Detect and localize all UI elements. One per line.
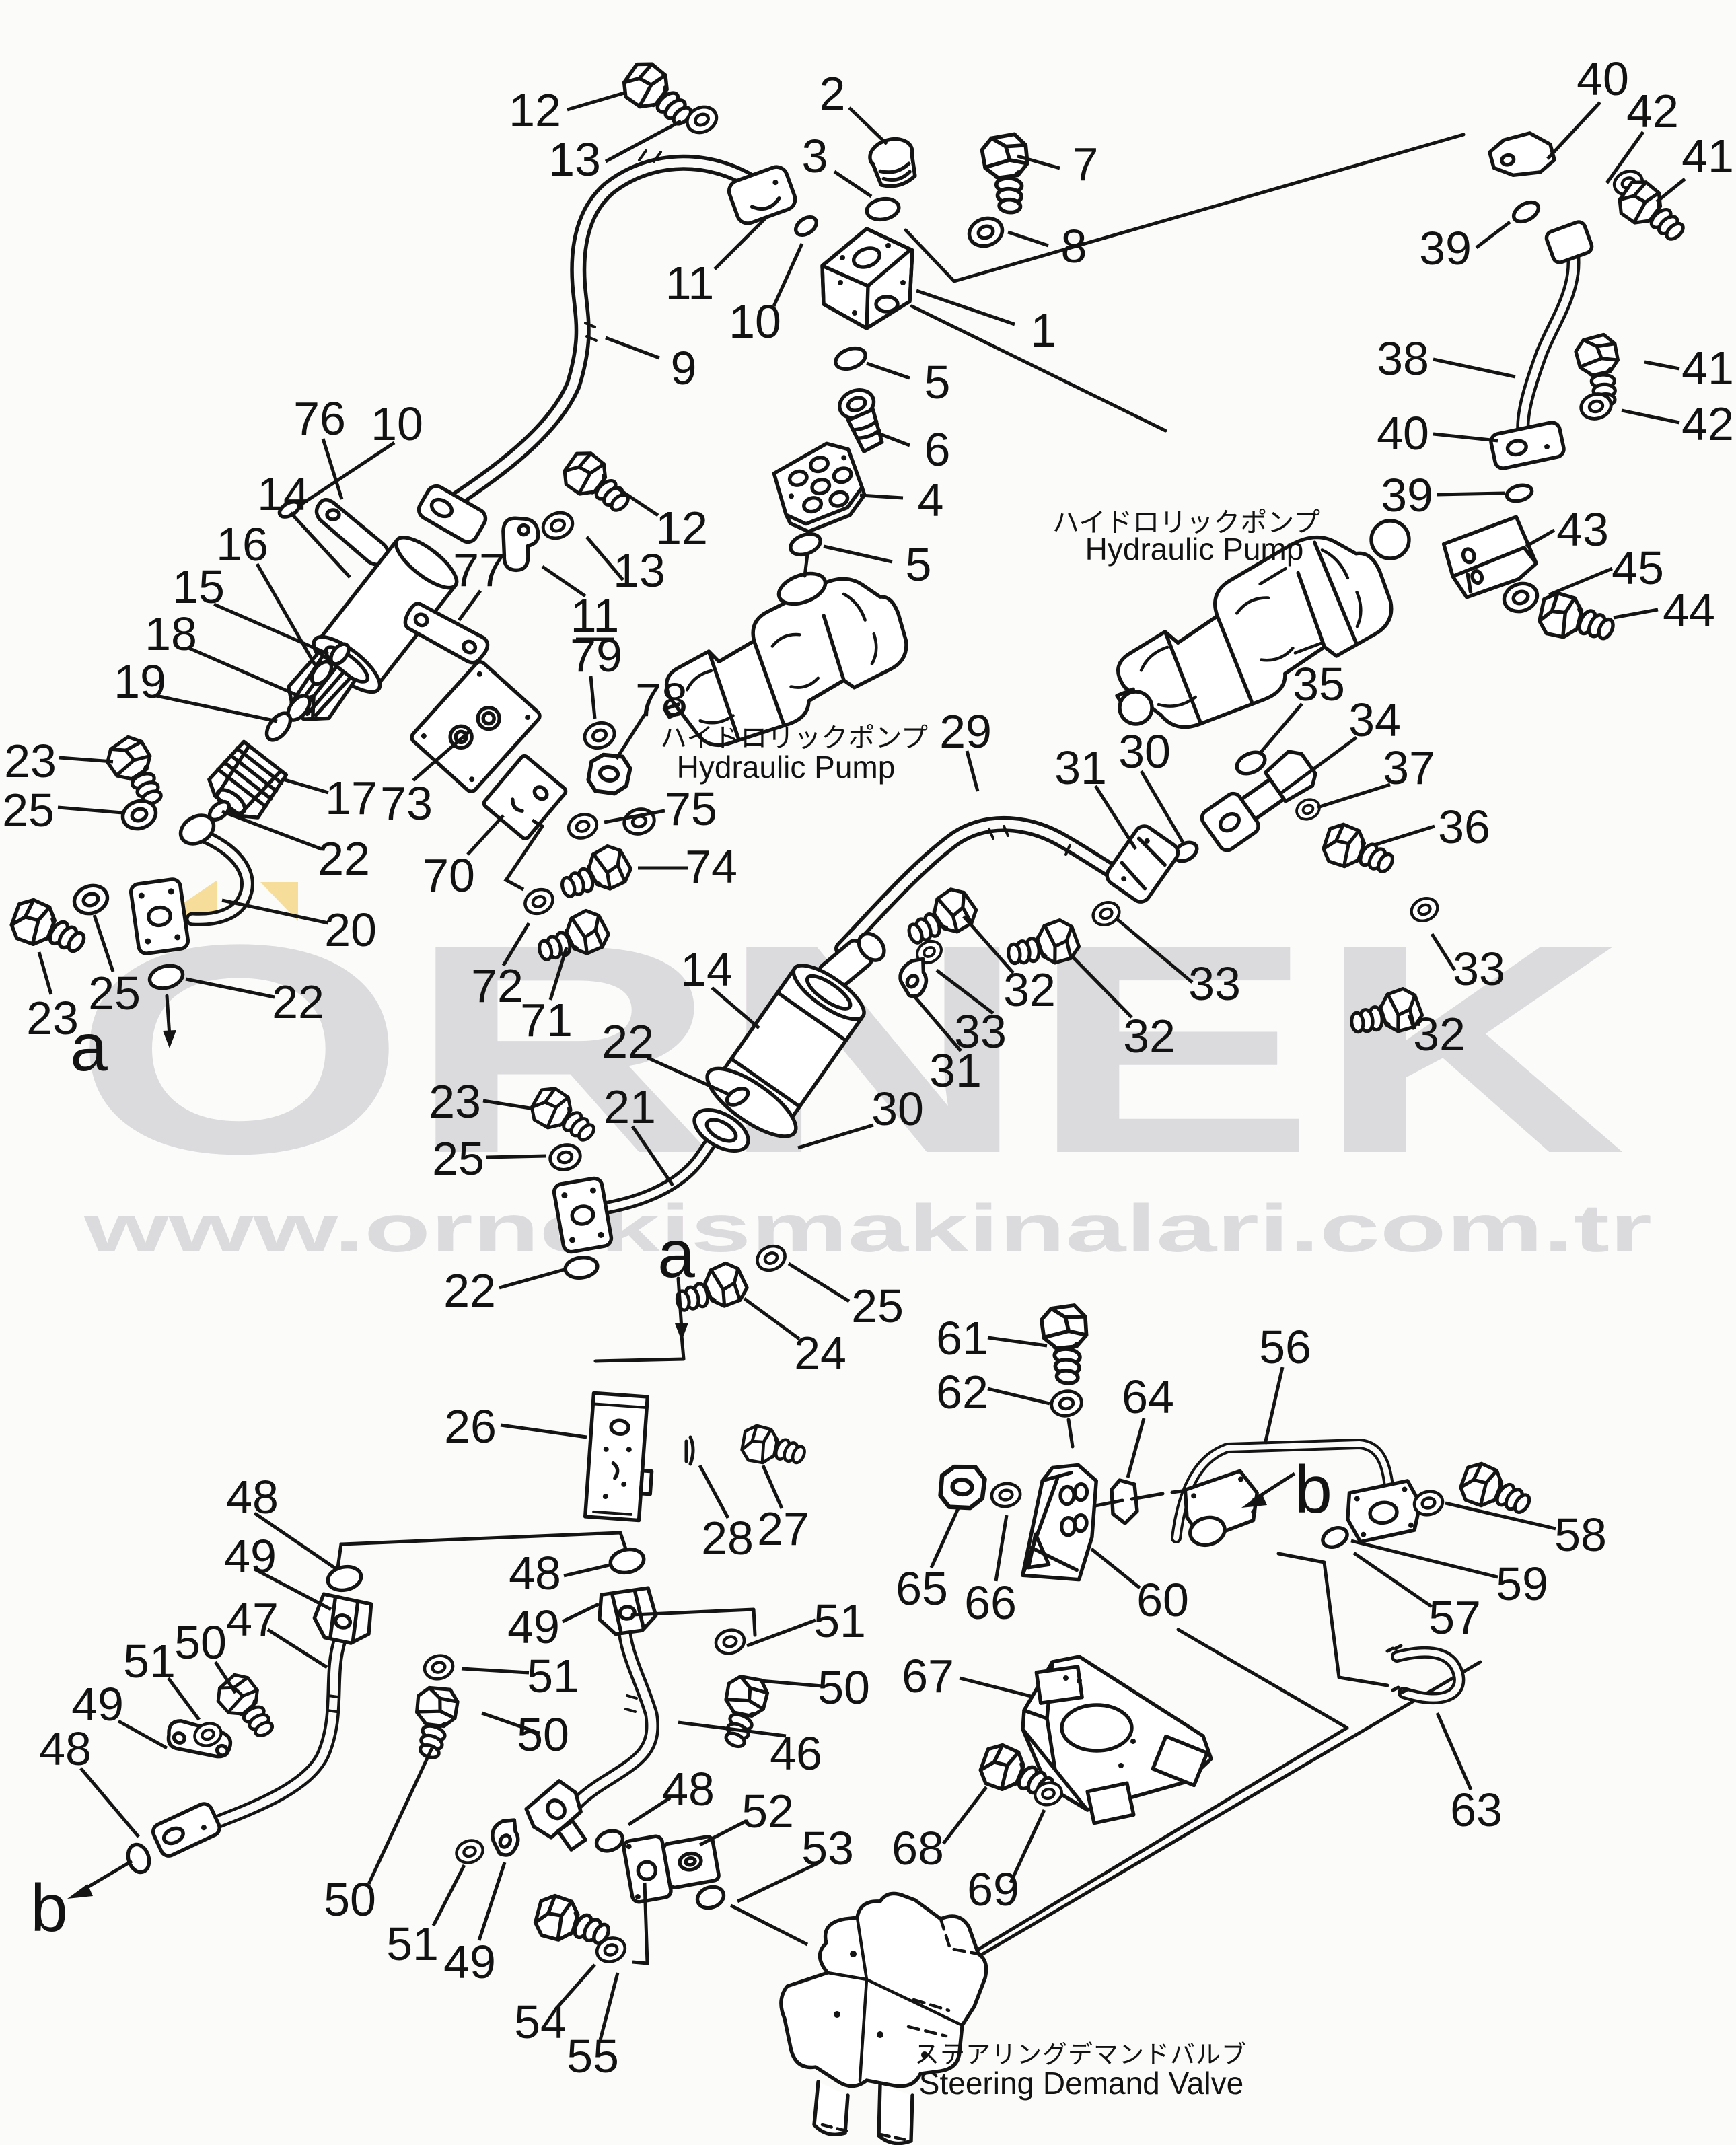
svg-text:75: 75 [665,783,717,835]
svg-text:6: 6 [925,423,951,476]
svg-text:41: 41 [1681,130,1734,182]
svg-text:13: 13 [613,544,665,597]
svg-text:ハイドロリックポンプ: ハイドロリックポンプ [660,723,928,753]
svg-text:53: 53 [801,1822,854,1875]
svg-text:17: 17 [325,772,377,824]
svg-text:33: 33 [954,1005,1007,1058]
svg-text:24: 24 [794,1327,846,1379]
svg-text:55: 55 [567,2030,619,2082]
svg-text:40: 40 [1377,407,1429,460]
svg-text:49: 49 [71,1678,124,1731]
svg-text:5: 5 [925,356,951,408]
svg-text:3: 3 [802,130,828,182]
svg-text:61: 61 [936,1312,988,1365]
svg-text:26: 26 [444,1400,497,1453]
svg-text:34: 34 [1348,694,1401,746]
svg-text:29: 29 [939,705,992,758]
svg-text:30: 30 [1118,725,1171,778]
svg-text:50: 50 [324,1873,376,1926]
svg-text:51: 51 [527,1650,579,1702]
svg-text:8: 8 [1061,220,1087,272]
svg-text:10: 10 [371,398,423,450]
svg-text:21: 21 [604,1081,656,1133]
svg-text:50: 50 [818,1661,870,1714]
svg-text:54: 54 [514,1996,567,2048]
svg-text:14: 14 [680,943,733,996]
svg-text:49: 49 [224,1530,277,1583]
svg-text:23: 23 [4,735,57,787]
svg-text:25: 25 [851,1280,904,1332]
svg-text:2: 2 [820,67,846,120]
svg-text:73: 73 [380,777,433,830]
svg-text:48: 48 [662,1763,715,1815]
svg-text:32: 32 [1123,1010,1176,1062]
svg-text:74: 74 [685,840,737,893]
svg-text:www.ornekismakinalari.com.tr: www.ornekismakinalari.com.tr [83,1191,1652,1266]
svg-text:11: 11 [665,257,715,310]
svg-text:67: 67 [902,1650,954,1702]
svg-text:44: 44 [1663,584,1715,637]
svg-text:41: 41 [1681,342,1734,394]
svg-text:64: 64 [1122,1371,1174,1423]
svg-text:36: 36 [1438,801,1490,853]
svg-text:22: 22 [272,976,324,1028]
svg-text:5: 5 [906,538,932,591]
svg-text:77: 77 [453,544,505,596]
svg-text:ステアリングデマンドバルブ: ステアリングデマンドバルブ [914,2041,1247,2068]
svg-text:35: 35 [1293,658,1345,711]
svg-text:69: 69 [967,1863,1019,1916]
svg-text:b: b [1295,1452,1332,1527]
svg-text:33: 33 [1188,957,1241,1010]
svg-text:57: 57 [1428,1591,1481,1644]
svg-text:38: 38 [1377,332,1429,385]
svg-text:b: b [30,1870,68,1946]
svg-text:60: 60 [1136,1574,1189,1626]
svg-text:71: 71 [520,994,573,1046]
svg-text:50: 50 [517,1708,569,1761]
svg-text:70: 70 [423,849,475,902]
svg-text:56: 56 [1259,1321,1311,1373]
svg-text:10: 10 [729,295,781,348]
svg-text:20: 20 [324,904,377,956]
svg-text:28: 28 [701,1512,754,1564]
svg-text:25: 25 [2,784,55,836]
svg-text:68: 68 [892,1822,944,1875]
svg-text:51: 51 [813,1595,866,1647]
svg-text:62: 62 [936,1366,988,1418]
svg-text:79: 79 [570,629,622,682]
svg-text:4: 4 [918,474,944,526]
svg-text:59: 59 [1496,1558,1548,1610]
svg-text:50: 50 [174,1616,227,1669]
svg-text:30: 30 [871,1083,924,1135]
svg-text:51: 51 [123,1635,176,1687]
svg-text:32: 32 [1003,964,1056,1016]
svg-text:78: 78 [635,674,688,726]
svg-text:22: 22 [443,1264,496,1317]
svg-text:39: 39 [1381,469,1433,521]
svg-text:12: 12 [509,84,561,137]
svg-text:66: 66 [964,1576,1017,1629]
svg-text:7: 7 [1073,138,1099,190]
svg-text:42: 42 [1681,398,1734,450]
svg-text:40: 40 [1577,52,1629,105]
svg-text:16: 16 [216,518,268,571]
svg-text:48: 48 [226,1471,279,1523]
svg-text:65: 65 [896,1562,948,1615]
svg-text:23: 23 [429,1075,481,1128]
svg-text:58: 58 [1554,1508,1607,1561]
svg-text:37: 37 [1383,741,1435,794]
svg-text:Hydraulic Pump: Hydraulic Pump [677,750,896,785]
svg-text:22: 22 [318,832,370,885]
svg-text:49: 49 [443,1936,496,1988]
svg-text:19: 19 [114,655,166,708]
svg-text:49: 49 [507,1601,560,1653]
svg-text:33: 33 [1453,943,1505,995]
svg-text:63: 63 [1450,1784,1503,1836]
svg-text:13: 13 [548,133,601,186]
svg-text:45: 45 [1612,542,1664,594]
svg-text:25: 25 [432,1132,484,1185]
svg-text:46: 46 [770,1727,822,1780]
svg-text:43: 43 [1556,503,1609,556]
svg-text:a: a [657,1216,695,1292]
svg-text:22: 22 [602,1015,654,1068]
svg-text:51: 51 [386,1918,439,1970]
svg-text:9: 9 [671,342,697,394]
svg-text:76: 76 [293,392,346,445]
svg-text:a: a [70,1010,108,1085]
svg-text:42: 42 [1626,85,1679,137]
svg-text:27: 27 [757,1502,809,1555]
svg-text:39: 39 [1419,222,1472,275]
svg-text:Hydraulic Pump: Hydraulic Pump [1085,532,1304,567]
svg-text:47: 47 [226,1593,279,1646]
svg-text:52: 52 [742,1785,794,1838]
svg-text:14: 14 [257,468,310,520]
svg-text:32: 32 [1413,1008,1466,1060]
svg-text:Steering Demand Valve: Steering Demand Valve [919,2066,1243,2101]
svg-text:1: 1 [1031,304,1057,357]
svg-text:72: 72 [471,959,523,1012]
svg-text:31: 31 [1054,741,1107,794]
svg-text:18: 18 [145,608,197,660]
svg-text:48: 48 [509,1547,561,1599]
